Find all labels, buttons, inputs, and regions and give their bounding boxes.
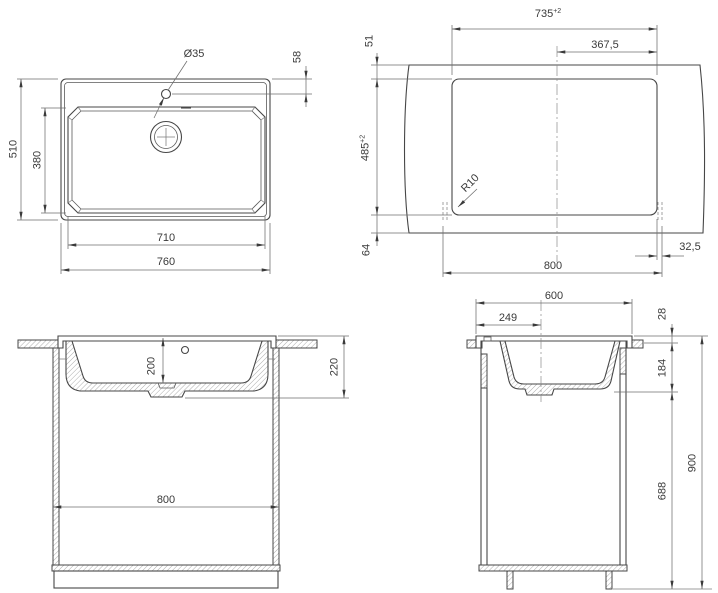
drawing-sheet: Ø35 510 380 710 760 58 735+2 367 <box>0 0 718 593</box>
dim-label-rear-clearance: 64 <box>361 244 373 256</box>
tap-hole <box>162 90 171 99</box>
worktop-left-section <box>18 340 63 348</box>
top-view: Ø35 510 380 710 760 58 <box>8 48 313 274</box>
cabinet-bottom-board-side <box>479 565 627 571</box>
worktop-outline <box>405 65 705 233</box>
dim-label-cabinet-height: 688 <box>657 482 669 500</box>
dim-label-cutout-width: 735+2 <box>535 8 561 20</box>
worktop-right-section <box>271 340 317 348</box>
drain-centerlines <box>157 128 175 146</box>
dim-label-front-clearance: 51 <box>364 35 376 47</box>
tap-hole-section <box>182 347 189 354</box>
dim-label-side-clearance: 32,5 <box>679 241 700 253</box>
sink-outer-edge <box>61 79 270 220</box>
dim-label-total-depth: 220 <box>329 358 341 376</box>
dim-label-corner-radius: R10 <box>459 172 482 195</box>
cabinet-rear-leg <box>606 571 612 589</box>
hidden-cabinet-edges <box>443 202 662 222</box>
dim-label-bowl-depth: 200 <box>146 357 158 375</box>
dim-label-cabinet-width: 800 <box>544 260 562 272</box>
dim-label-center-offset: 367,5 <box>591 39 619 51</box>
dim-label-drain-offset: 249 <box>499 312 517 324</box>
side-section-view: 600 249 28 184 688 900 <box>467 290 712 589</box>
cabinet-front-leg <box>507 571 513 589</box>
dim-label-tap-hole: Ø35 <box>184 48 205 60</box>
tap-hole-leader <box>169 61 188 90</box>
dim-label-cutout-depth: 485+2 <box>360 135 372 161</box>
cabinet-right-wall <box>273 348 279 565</box>
cabinet-rear-rail <box>620 348 626 374</box>
dim-label-cabinet-width-front: 800 <box>157 494 175 506</box>
dim-label-overall-depth: 510 <box>8 140 20 158</box>
dim-label-tap-offset: 58 <box>292 51 304 63</box>
dim-label-basin-width: 710 <box>157 232 175 244</box>
bowl-section-side <box>500 341 620 395</box>
dim-label-rim-height: 28 <box>657 308 669 320</box>
dim-label-overall-width: 760 <box>157 256 175 268</box>
cutout-view: 735+2 367,5 51 485+2 64 800 32,5 R10 <box>360 8 705 277</box>
dim-label-sink-width: 600 <box>545 290 563 302</box>
sink-rim-section-side <box>476 336 632 348</box>
bowl-corner-facets <box>68 107 265 213</box>
sink-rim-section <box>58 336 276 348</box>
sink-rim-inner-edge <box>65 83 267 217</box>
cutout-rectangle <box>452 79 657 215</box>
sink-technical-drawing: Ø35 510 380 710 760 58 735+2 367 <box>0 0 718 593</box>
cabinet-plinth <box>54 571 278 588</box>
cabinet-left-wall <box>53 348 59 565</box>
bowl-opening-outer <box>68 107 265 213</box>
cabinet-bottom-board <box>52 565 280 571</box>
dim-label-under-counter-depth: 184 <box>657 359 669 377</box>
dim-label-total-height: 900 <box>687 454 699 472</box>
dim-label-basin-depth: 380 <box>32 151 44 169</box>
tap-hole-leader-arrow <box>154 98 164 119</box>
front-section-view: 200 220 800 <box>18 336 349 588</box>
bowl-section <box>66 341 268 397</box>
cabinet-front-rail <box>481 354 487 388</box>
